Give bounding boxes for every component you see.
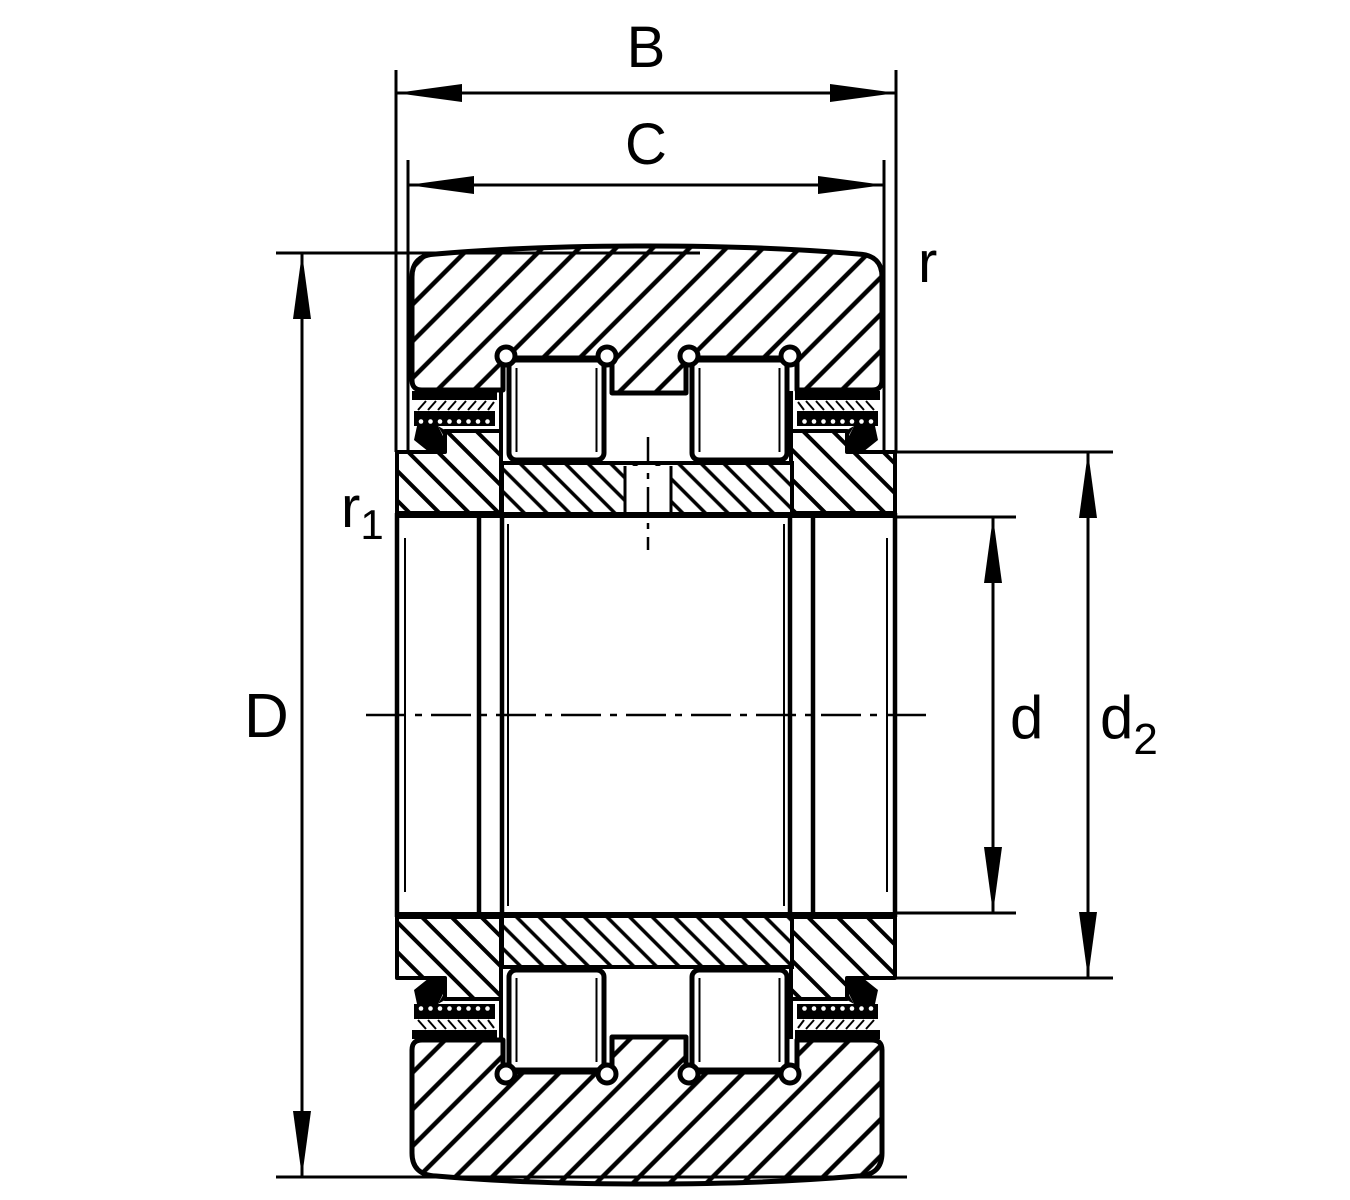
bearing-bottom-half bbox=[397, 915, 895, 1185]
dimension-label-bore: d bbox=[1010, 684, 1043, 751]
drawing-canvas: B C D d bbox=[0, 0, 1350, 1200]
canvas-background bbox=[0, 0, 1350, 1200]
roller bbox=[509, 360, 604, 460]
roller bbox=[509, 970, 604, 1070]
roller bbox=[692, 360, 787, 460]
outer-ring-section bbox=[412, 246, 882, 393]
dimension-label-r: r bbox=[918, 230, 937, 295]
dimension-label-outer-diameter: D bbox=[244, 682, 289, 751]
bearing-cross-section-drawing: B C D d bbox=[0, 0, 1350, 1200]
outer-ring-section bbox=[412, 1037, 882, 1184]
roller bbox=[692, 970, 787, 1070]
dimension-label-c: C bbox=[625, 112, 667, 177]
dimension-label-b: B bbox=[627, 15, 666, 80]
inner-ring-section bbox=[502, 916, 792, 967]
